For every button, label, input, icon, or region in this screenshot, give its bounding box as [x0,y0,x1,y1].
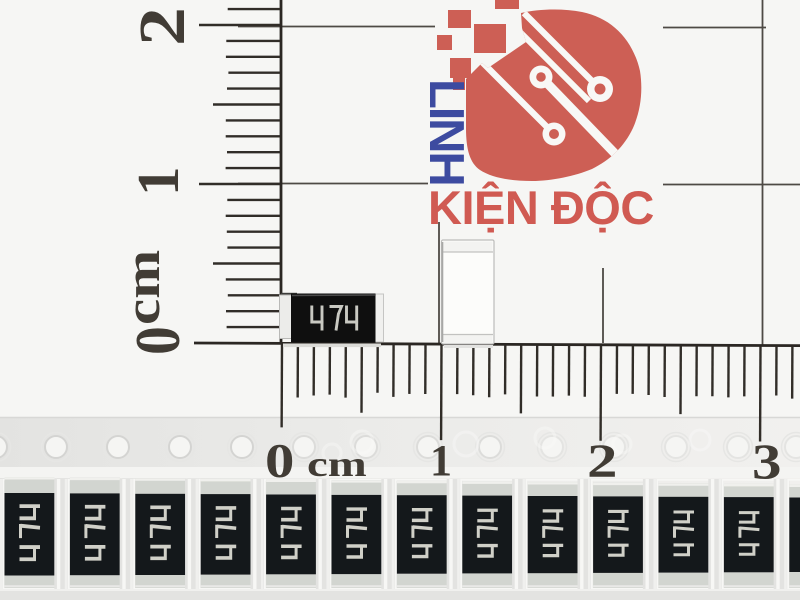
svg-text:2: 2 [587,434,617,487]
svg-text:LINH: LINH [419,79,473,185]
svg-text:3: 3 [752,433,782,489]
svg-text:1: 1 [125,167,191,197]
svg-text:cm: cm [307,445,367,485]
svg-text:KIỆN ĐỘC: KIỆN ĐỘC [428,181,654,234]
svg-text:0: 0 [265,434,294,488]
svg-text:1: 1 [430,436,452,485]
svg-text:2: 2 [125,7,198,46]
svg-text:0: 0 [123,326,193,355]
svg-text:cm: cm [114,250,170,325]
